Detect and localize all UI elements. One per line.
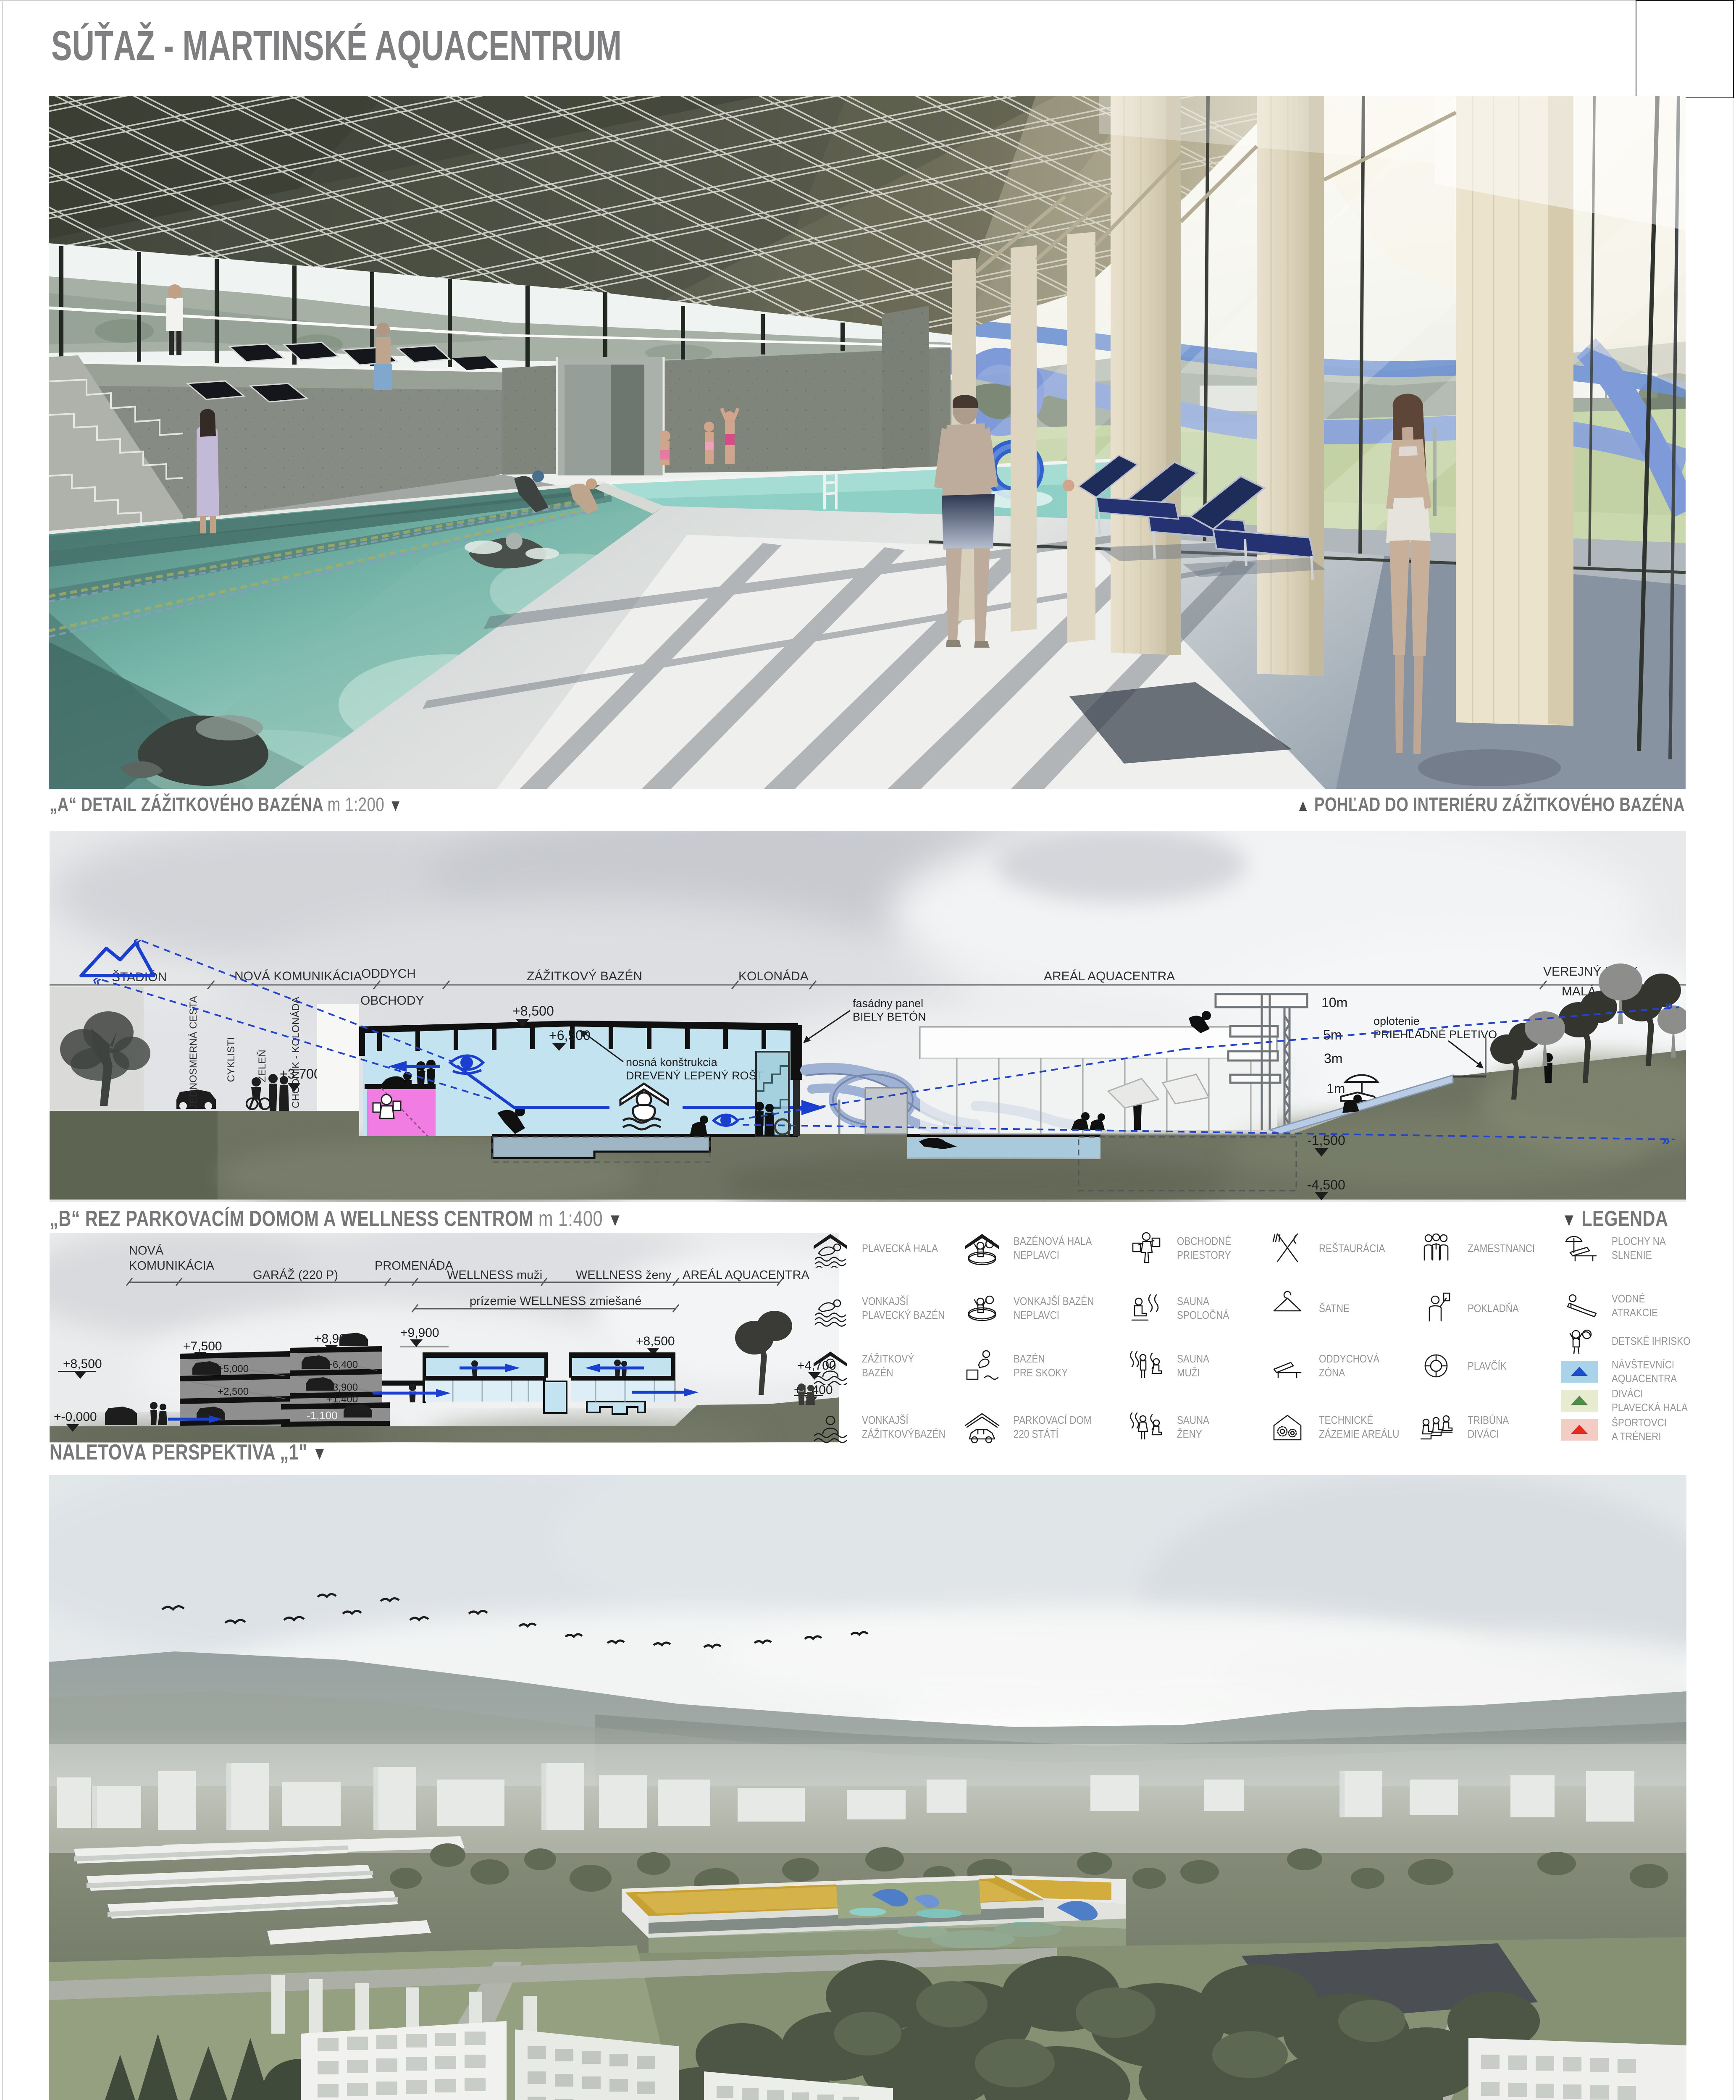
svg-text:+8,500: +8,500 (636, 1334, 675, 1348)
svg-text:CHODNÍK - KOLONÁDA: CHODNÍK - KOLONÁDA (290, 997, 302, 1108)
svg-text:ZÁŽITKOVÝ BAZÉN: ZÁŽITKOVÝ BAZÉN (527, 969, 642, 983)
svg-text:+2,500: +2,500 (218, 1386, 249, 1397)
svg-text:PRIEHĽADNÉ PLETIVO: PRIEHĽADNÉ PLETIVO (1374, 1028, 1497, 1041)
svg-text:-1,100: -1,100 (307, 1409, 338, 1422)
svg-text:nosná konštrukcia: nosná konštrukcia (626, 1056, 718, 1068)
svg-text:5m: 5m (1323, 1027, 1342, 1042)
svg-text:+1,400: +1,400 (327, 1394, 358, 1405)
svg-text:NOVÁ: NOVÁ (129, 1244, 164, 1257)
svg-text:JEDNOSMERNÁ CESTA: JEDNOSMERNÁ CESTA (188, 996, 199, 1109)
svg-text:-1,500: -1,500 (1307, 1133, 1345, 1148)
svg-text:10m: 10m (1321, 995, 1347, 1010)
svg-text:GARÁŽ (220 P): GARÁŽ (220 P) (253, 1268, 338, 1282)
svg-text:KOMUNIKÁCIA: KOMUNIKÁCIA (129, 1259, 215, 1273)
svg-text:WELLNESS ženy: WELLNESS ženy (576, 1268, 672, 1282)
svg-text:BIELY BETÓN: BIELY BETÓN (853, 1010, 926, 1023)
svg-text:fasádny panel: fasádny panel (853, 997, 923, 1010)
svg-text:DREVENÝ LEPENÝ ROŠT: DREVENÝ LEPENÝ ROŠT (626, 1069, 763, 1082)
svg-text:OBCHODY: OBCHODY (360, 994, 424, 1008)
svg-text:CYKLISTI: CYKLISTI (226, 1037, 237, 1082)
svg-text:prízemie WELLNESS zmiešané: prízemie WELLNESS zmiešané (470, 1294, 641, 1308)
svg-text:+7,500: +7,500 (183, 1339, 222, 1353)
svg-text:3m: 3m (1324, 1051, 1342, 1066)
svg-text:ZELEŇ: ZELEŇ (257, 1050, 268, 1082)
svg-text:KOLONÁDA: KOLONÁDA (738, 969, 809, 983)
svg-text:AREÁL AQUACENTRA: AREÁL AQUACENTRA (1044, 969, 1175, 983)
svg-text:NOVÁ KOMUNIKÁCIA: NOVÁ KOMUNIKÁCIA (234, 969, 362, 983)
svg-text:+3,900: +3,900 (327, 1382, 358, 1393)
svg-text:+8,500: +8,500 (63, 1357, 102, 1371)
svg-text:PROMENÁDA: PROMENÁDA (375, 1259, 454, 1273)
svg-text:+5,000: +5,000 (218, 1363, 249, 1375)
svg-text:-4,500: -4,500 (1307, 1177, 1345, 1192)
svg-text:»: » (1662, 1131, 1670, 1149)
svg-text:+3,700: +3,700 (280, 1066, 321, 1081)
svg-text:AREÁL AQUACENTRA: AREÁL AQUACENTRA (683, 1268, 810, 1282)
svg-text:+9,900: +9,900 (400, 1326, 439, 1340)
svg-text:+8,500: +8,500 (512, 1003, 554, 1018)
svg-text:+6,400: +6,400 (327, 1359, 358, 1370)
svg-text:oplotenie: oplotenie (1374, 1015, 1420, 1027)
svg-text:WELLNESS muži: WELLNESS muži (447, 1268, 542, 1282)
svg-text:ODDYCH: ODDYCH (361, 967, 416, 981)
svg-text:+-0,000: +-0,000 (54, 1410, 97, 1424)
svg-text:1m: 1m (1326, 1081, 1345, 1096)
svg-text:»: » (1664, 996, 1674, 1014)
